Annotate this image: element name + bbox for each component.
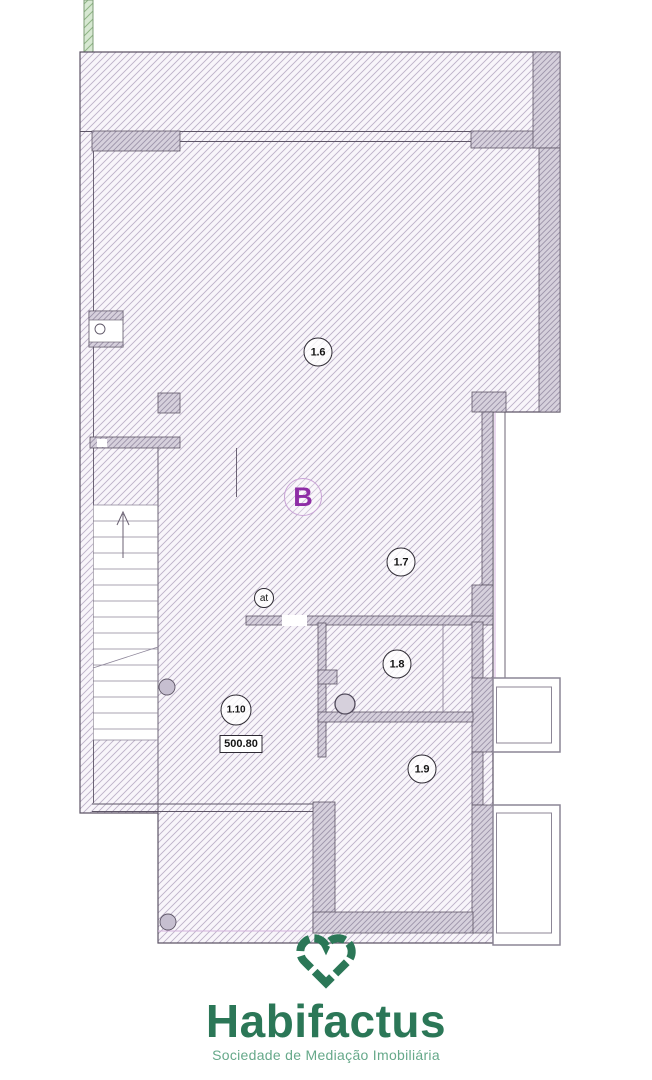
room-label-1-10: 1.10: [221, 695, 252, 726]
logo-tagline: Sociedade de Mediação Imobiliária: [0, 1047, 652, 1063]
window-bays: [493, 678, 560, 945]
block-label-b: B: [284, 478, 322, 516]
room-label-1-7: 1.7: [387, 548, 416, 577]
habifactus-heart-icon: [294, 931, 358, 989]
level-label: 500.80: [220, 735, 263, 753]
door-label-at: at: [254, 588, 274, 608]
room-label-1-8: 1.8: [383, 650, 412, 679]
room-label-1-6: 1.6: [304, 338, 333, 367]
staircase: [93, 505, 158, 740]
floor-plan-drawing: [0, 0, 652, 1080]
logo-wordmark: Habifactus: [0, 994, 652, 1048]
green-boundary-strip: [84, 0, 93, 53]
floorplan-page: 1.6 B 1.7 at 1.8 1.10 500.80 1.9 Habifac…: [0, 0, 652, 1080]
left-wall-fixture: [89, 311, 123, 347]
room-label-1-9: 1.9: [408, 755, 437, 784]
